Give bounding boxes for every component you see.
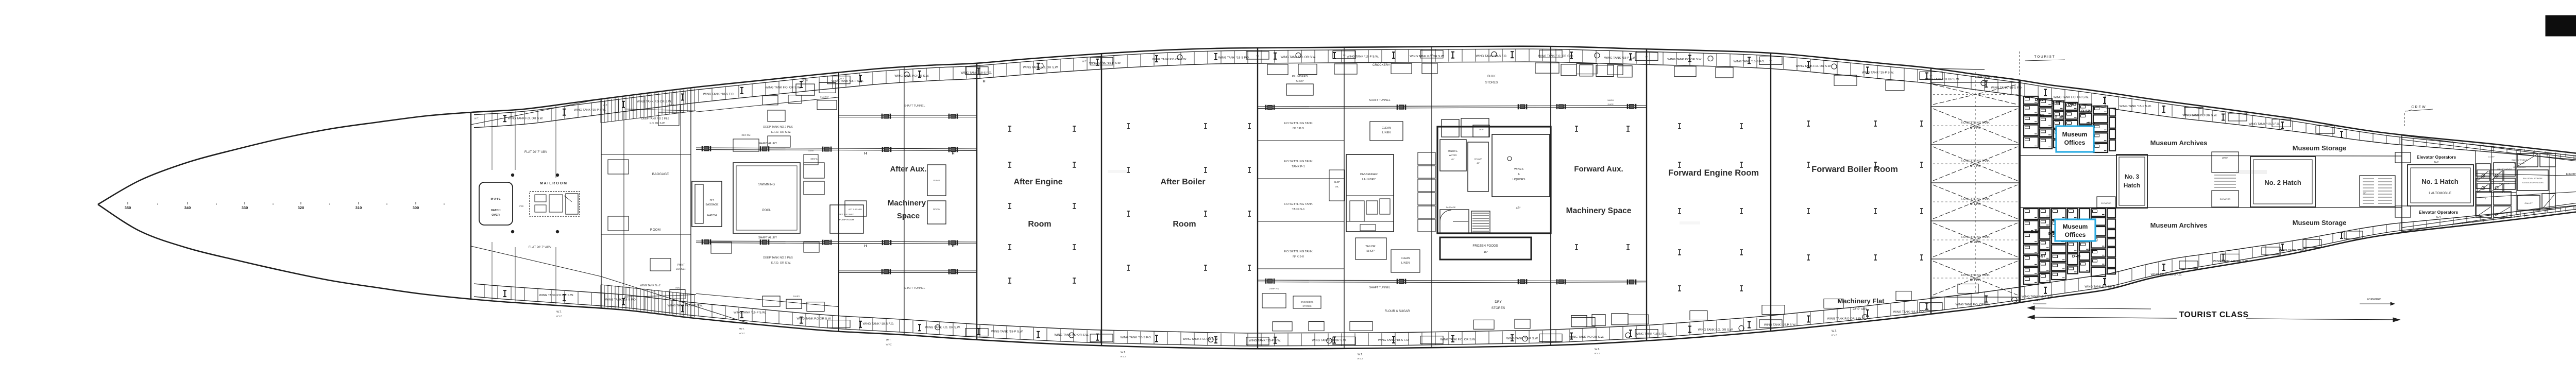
svg-text:WING TANK °15-P S.W.: WING TANK °15-P S.W.: [2279, 249, 2312, 252]
svg-text:AFT: AFT: [2037, 299, 2042, 302]
svg-text:45°: 45°: [1516, 207, 1521, 210]
svg-text:TE: TE: [1929, 75, 1933, 77]
svg-text:Space: Space: [897, 212, 920, 220]
svg-text:W.T.: W.T.: [1082, 60, 1087, 62]
svg-text:HATCH: HATCH: [707, 214, 717, 217]
svg-text:MINERAL: MINERAL: [1448, 150, 1458, 152]
svg-text:HATCH: HATCH: [491, 209, 501, 212]
svg-text:F.O SETTLING TANK: F.O SETTLING TANK: [1284, 250, 1313, 253]
svg-text:BAGGAGE: BAGGAGE: [705, 203, 719, 206]
svg-text:SHOP: SHOP: [1296, 80, 1304, 83]
svg-text:W.V.Z: W.V.Z: [1831, 334, 1837, 337]
svg-text:WING TANK F.O. OR S.W.: WING TANK F.O. OR S.W.: [1440, 338, 1476, 341]
svg-text:WING TANK P.O OR S.W.: WING TANK P.O OR S.W.: [1569, 336, 1604, 339]
svg-text:SEW: SEW: [808, 149, 814, 152]
svg-text:Offices: Offices: [2064, 139, 2086, 146]
svg-text:Museum Storage: Museum Storage: [2293, 219, 2347, 227]
svg-text:1 AUTOMOBILE: 1 AUTOMOBILE: [2429, 192, 2451, 195]
svg-text:SHAFT TUNNEL: SHAFT TUNNEL: [1369, 286, 1390, 289]
svg-text:TE: TE: [1769, 60, 1772, 62]
svg-text:№2: №2: [2434, 161, 2439, 164]
svg-text:LAUNDRY: LAUNDRY: [1362, 178, 1376, 181]
svg-text:WING TANK F.O. OR S.W.: WING TANK F.O. OR S.W.: [766, 87, 801, 90]
svg-text:W.V.Z: W.V.Z: [556, 315, 562, 317]
svg-text:Nº 3 P.O: Nº 3 P.O: [1293, 127, 1304, 130]
svg-text:WING TANK F.O. OR S.W.: WING TANK F.O. OR S.W.: [508, 117, 544, 120]
svg-text:TE: TE: [1430, 54, 1433, 56]
svg-text:Machinery Space: Machinery Space: [1566, 206, 1632, 215]
svg-text:WING TANK °15-P S.W.: WING TANK °15-P S.W.: [1764, 324, 1797, 327]
svg-text:22'.0" ABV: 22'.0" ABV: [1853, 308, 1867, 311]
svg-text:W.V.Z: W.V.Z: [1594, 352, 1600, 355]
svg-text:After Engine: After Engine: [1013, 178, 1062, 186]
svg-text:D·58: D·58: [2036, 113, 2044, 117]
svg-text:W.T.: W.T.: [1595, 348, 1600, 351]
svg-text:D·50: D·50: [2087, 121, 2095, 126]
svg-text:Elevator Operators: Elevator Operators: [2419, 210, 2459, 215]
svg-text:350: 350: [125, 205, 131, 210]
svg-text:ELEVATOR: ELEVATOR: [2101, 202, 2111, 204]
svg-text:W.T.: W.T.: [1832, 330, 1837, 333]
svg-text:WING TANK °18-S F.O.: WING TANK °18-S F.O.: [1121, 336, 1152, 339]
svg-text:WING TANK P.O OR S.W.: WING TANK P.O OR S.W.: [796, 318, 832, 321]
svg-text:GALLEY W'NDLS: GALLEY W'NDLS: [2512, 159, 2528, 161]
svg-text:Hatch: Hatch: [2124, 183, 2140, 189]
svg-text:WING TANK °15-P S.W.: WING TANK °15-P S.W.: [1249, 339, 1281, 342]
svg-text:18 B.R: 18 B.R: [667, 103, 675, 106]
svg-text:LINEN: LINEN: [1401, 262, 1410, 265]
svg-text:TE: TE: [1256, 55, 1259, 57]
svg-text:D·62: D·62: [2068, 102, 2076, 107]
svg-text:SEW &: SEW &: [810, 158, 818, 160]
svg-text:WING TANK °15-P S.W.: WING TANK °15-P S.W.: [991, 331, 1024, 334]
svg-text:310: 310: [355, 205, 362, 210]
svg-text:45°: 45°: [1477, 162, 1480, 164]
svg-text:WING TANK F.O. OR S.W.: WING TANK F.O. OR S.W.: [925, 326, 961, 329]
svg-text:Forward Boiler Room: Forward Boiler Room: [1811, 165, 1898, 174]
svg-text:WING TANK °15-P S.W.: WING TANK °15-P S.W.: [2120, 105, 2152, 108]
svg-text:No. 2 Hatch: No. 2 Hatch: [2264, 179, 2301, 186]
svg-text:H: H: [952, 152, 954, 156]
svg-text:2'90: 2'90: [519, 205, 524, 208]
svg-text:PAINT: PAINT: [677, 264, 685, 267]
svg-text:UP: UP: [2363, 192, 2366, 194]
svg-text:Offices: Offices: [2065, 231, 2086, 238]
svg-text:W.T.: W.T.: [474, 117, 479, 120]
svg-text:D·64: D·64: [2052, 100, 2060, 105]
svg-text:D·56: D·56: [2035, 97, 2043, 102]
svg-text:REC RM: REC RM: [742, 134, 751, 136]
svg-text:D·47: D·47: [2088, 248, 2096, 252]
svg-text:D·59: D·59: [2031, 229, 2039, 234]
svg-text:W.V.Z: W.V.Z: [1357, 357, 1363, 360]
svg-text:WING TANK P.O OR S.W.: WING TANK P.O OR S.W.: [1312, 339, 1347, 342]
svg-text:WING TANK °18-S F.O.: WING TANK °18-S F.O.: [1734, 60, 1765, 63]
svg-text:CLEAN: CLEAN: [1382, 127, 1391, 130]
svg-text:STORES: STORES: [1485, 81, 1498, 84]
svg-text:SHAFT TUNNEL: SHAFT TUNNEL: [904, 287, 925, 290]
svg-text:W.T.: W.T.: [840, 77, 845, 80]
svg-text:TE: TE: [1645, 56, 1648, 58]
svg-text:TAILOR: TAILOR: [1365, 245, 1375, 248]
svg-text:WING TANK °18-S F.O.: WING TANK °18-S F.O.: [1893, 311, 1925, 314]
svg-text:M·A·I·L: M·A·I·L: [491, 198, 501, 201]
svg-text:Machinery: Machinery: [888, 199, 926, 208]
svg-text:ELEVATOR: ELEVATOR: [2220, 198, 2231, 200]
svg-text:Nº X 5-0: Nº X 5-0: [1293, 255, 1304, 258]
svg-text:WATER: WATER: [1449, 154, 1456, 157]
svg-text:Museum Archives: Museum Archives: [2150, 221, 2208, 229]
svg-text:-15°: -15°: [1483, 251, 1488, 254]
svg-text:WING TANK P.O OR S.W.: WING TANK P.O OR S.W.: [2182, 114, 2217, 117]
svg-text:WING TANK °18-S F.O.: WING TANK °18-S F.O.: [1218, 57, 1250, 60]
svg-text:TANK 5-1: TANK 5-1: [1292, 208, 1304, 211]
svg-text:E.F.O. OR S.W.: E.F.O. OR S.W.: [771, 262, 791, 265]
svg-text:SLOP: SLOP: [1334, 181, 1340, 183]
svg-text:WING TANK °15-P S.W.: WING TANK °15-P S.W.: [832, 80, 864, 83]
svg-text:POOL: POOL: [762, 209, 771, 212]
svg-text:Museum: Museum: [2063, 223, 2088, 230]
svg-text:GALLEY: GALLEY: [2524, 202, 2533, 204]
svg-text:DEEP TANK NO 1 P&S: DEEP TANK NO 1 P&S: [641, 117, 670, 120]
svg-text:WINES: WINES: [1514, 168, 1523, 171]
svg-text:WING TANKS 3 P: WING TANKS 3 P: [1975, 76, 1997, 79]
svg-text:Museum Storage: Museum Storage: [2293, 144, 2347, 152]
svg-text:WASH: WASH: [1607, 99, 1614, 101]
svg-text:WING TANK P.O OR S.W.: WING TANK P.O OR S.W.: [1667, 58, 1702, 61]
svg-text:WING TANK °15-P S.W.: WING TANK °15-P S.W.: [2022, 295, 2054, 298]
svg-text:STORES: STORES: [1492, 306, 1505, 310]
svg-text:Museum: Museum: [2062, 131, 2088, 138]
svg-text:H: H: [952, 245, 954, 248]
svg-text:FLAT 20'.7" ABV: FLAT 20'.7" ABV: [524, 151, 547, 154]
svg-text:FLOUR & SUGAR: FLOUR & SUGAR: [1384, 310, 1410, 313]
svg-text:W.T.: W.T.: [603, 103, 608, 106]
svg-text:WING TANK °18-S F.O.: WING TANK °18-S F.O.: [2249, 123, 2280, 126]
svg-text:SHAFT TUNNEL: SHAFT TUNNEL: [904, 105, 925, 108]
svg-text:LINEN: LINEN: [2222, 157, 2228, 159]
svg-text:WING TANK °18-S F.O.: WING TANK °18-S F.O.: [703, 93, 735, 96]
svg-text:WING TANK °15-P S.W.: WING TANK °15-P S.W.: [734, 312, 766, 315]
svg-text:After Aux.: After Aux.: [890, 165, 926, 174]
svg-text:WING TANK P.O OR S.W.: WING TANK P.O OR S.W.: [1054, 334, 1089, 337]
svg-text:LAMP RM: LAMP RM: [1269, 287, 1280, 290]
svg-text:OPERATORS: OPERATORS: [2513, 166, 2526, 168]
svg-text:ELEVATOR OPERATORS: ELEVATOR OPERATORS: [2522, 182, 2544, 184]
svg-text:WING TANK F.O. OR S.W.: WING TANK F.O. OR S.W.: [1281, 56, 1316, 59]
svg-text:Room: Room: [1173, 220, 1196, 229]
svg-text:F.O SETTLING TANK: F.O SETTLING TANK: [1284, 203, 1313, 206]
svg-text:WING TANK °18-S F.O.: WING TANK °18-S F.O.: [2151, 273, 2182, 277]
svg-text:STORES: STORES: [1302, 305, 1311, 307]
svg-text:330: 330: [242, 205, 248, 210]
svg-text:TE: TE: [1549, 53, 1552, 56]
svg-text:W.V.Z: W.V.Z: [1120, 355, 1126, 358]
svg-text:No. 3: No. 3: [2125, 174, 2139, 180]
svg-text:WING TANK P.O OR S.W.: WING TANK P.O OR S.W.: [2084, 285, 2120, 288]
svg-text:Forward Engine Room: Forward Engine Room: [1668, 168, 1759, 178]
svg-text:WING TANK °18-S F.O.: WING TANK °18-S F.O.: [863, 323, 894, 326]
svg-text:H: H: [864, 245, 867, 248]
svg-text:DEEP TANK NO 2 P&S: DEEP TANK NO 2 P&S: [763, 126, 793, 129]
svg-text:WING TANK °15-P S.W.: WING TANK °15-P S.W.: [1347, 56, 1379, 59]
svg-text:Forward Aux.: Forward Aux.: [1574, 165, 1623, 174]
svg-text:H: H: [864, 152, 867, 156]
svg-text:TE: TE: [975, 70, 978, 73]
svg-text:AFT 1-42 MFD: AFT 1-42 MFD: [849, 208, 862, 211]
svg-text:W.V.Z: W.V.Z: [886, 343, 891, 346]
svg-text:F.O. OR S.W.: F.O. OR S.W.: [650, 122, 665, 125]
svg-text:BEER: BEER: [802, 79, 808, 81]
svg-text:T O U R I S T: T O U R I S T: [2034, 55, 2054, 59]
svg-text:BALLROOM W'DROBE: BALLROOM W'DROBE: [2523, 178, 2543, 180]
svg-text:TOURIST CLASS: TOURIST CLASS: [2179, 310, 2248, 319]
svg-text:SHOP: SHOP: [1607, 103, 1614, 106]
svg-text:Machinery Flat: Machinery Flat: [1837, 297, 1885, 305]
svg-text:SHAFT ALLEY: SHAFT ALLEY: [758, 236, 777, 239]
svg-text:D·57: D·57: [2037, 254, 2045, 258]
svg-text:PUMP: PUMP: [933, 179, 940, 182]
svg-text:WING TANK °18-S F.O.: WING TANK °18-S F.O.: [1378, 339, 1410, 342]
svg-text:BAGGAGE: BAGGAGE: [652, 172, 669, 176]
svg-text:WING TANK P.O OR S.W.: WING TANK P.O OR S.W.: [894, 75, 929, 78]
svg-text:♂: ♂: [2484, 198, 2486, 201]
svg-text:PASSENGER: PASSENGER: [1360, 173, 1378, 176]
svg-text:F.O SETTLING TANK: F.O SETTLING TANK: [1284, 122, 1313, 125]
svg-text:WING TANK P.O OR S.W.: WING TANK P.O OR S.W.: [539, 294, 574, 297]
svg-text:WING TANK F.O. OR S.W.: WING TANK F.O. OR S.W.: [1796, 65, 1832, 68]
svg-text:OVER: OVER: [492, 214, 500, 217]
svg-text:ROOM: ROOM: [933, 208, 940, 211]
svg-text:340: 340: [184, 205, 191, 210]
svg-text:WING TANK °15-P S.W.: WING TANK °15-P S.W.: [1604, 57, 1637, 60]
svg-text:D·54: D·54: [2055, 114, 2063, 118]
svg-text:FROZEN FOODS: FROZEN FOODS: [1472, 244, 1498, 248]
svg-text:WING TANK P.O OR S.W.: WING TANK P.O OR S.W.: [637, 100, 672, 103]
svg-text:BULK: BULK: [1487, 75, 1496, 78]
svg-text:Museum Archives: Museum Archives: [2150, 139, 2208, 147]
svg-text:WING TANK °15-P S.W.: WING TANK °15-P S.W.: [1862, 71, 1894, 74]
svg-text:300: 300: [413, 205, 419, 210]
svg-text:TE: TE: [1100, 60, 1103, 63]
svg-text:OIL: OIL: [1335, 185, 1339, 188]
svg-text:M A I L R O O M: M A I L R O O M: [540, 182, 567, 185]
svg-text:TE: TE: [837, 79, 840, 82]
svg-text:WING TANK F.O. OR S.W.: WING TANK F.O. OR S.W.: [1538, 55, 1574, 58]
svg-text:PASSAGE: PASSAGE: [1446, 206, 1456, 209]
svg-text:FLAT 20'.7" ABV: FLAT 20'.7" ABV: [529, 246, 551, 249]
svg-text:W.T.: W.T.: [1121, 351, 1126, 354]
svg-text:LOCKER: LOCKER: [676, 268, 687, 271]
svg-text:SHOP: SHOP: [1366, 250, 1375, 253]
svg-text:TE: TE: [1343, 54, 1346, 57]
svg-text:WING TANK F.O. OR S.W.: WING TANK F.O. OR S.W.: [1023, 66, 1059, 70]
svg-text:DEEP TANK NO 2 P&S: DEEP TANK NO 2 P&S: [763, 256, 793, 260]
svg-text:Nº4: Nº4: [709, 198, 714, 202]
svg-text:SWIMMING: SWIMMING: [758, 183, 775, 186]
svg-text:LINEN: LINEN: [1382, 131, 1391, 134]
svg-text:PLUMBERS: PLUMBERS: [1292, 75, 1308, 78]
svg-text:W.T.: W.T.: [556, 310, 562, 314]
svg-text:W.V.Z: W.V.Z: [739, 332, 744, 335]
svg-text:W.T.: W.T.: [886, 339, 891, 342]
svg-text:&: &: [1518, 173, 1520, 176]
svg-text:DAIRY: DAIRY: [793, 295, 800, 298]
svg-text:WING TANK °15-P S.W.: WING TANK °15-P S.W.: [1089, 62, 1122, 65]
svg-text:FORWARD: FORWARD: [2367, 298, 2381, 301]
svg-text:WING TANK P.O OR S.W.: WING TANK P.O OR S.W.: [1410, 55, 1445, 58]
svg-text:ROOM: ROOM: [650, 228, 660, 232]
svg-text:ELEVATOR: ELEVATOR: [2514, 163, 2524, 165]
svg-text:ENGINEERS: ENGINEERS: [1301, 301, 1314, 303]
svg-text:No. 1 Hatch: No. 1 Hatch: [2421, 178, 2459, 185]
svg-text:WING TANK F.O. OR S.W.: WING TANK F.O. OR S.W.: [1698, 329, 1734, 332]
svg-text:W.T.: W.T.: [1358, 353, 1363, 356]
svg-text:WING TANK F.O. OR S.W.: WING TANK F.O. OR S.W.: [1956, 303, 1991, 306]
svg-text:Elevator Operators: Elevator Operators: [2417, 154, 2456, 160]
svg-text:CHAMP.: CHAMP.: [1474, 158, 1482, 160]
svg-text:PUMP ROOM: PUMP ROOM: [839, 218, 854, 221]
svg-text:P.O.: P.O.: [651, 289, 655, 292]
svg-text:H: H: [982, 80, 985, 83]
svg-text:WING TANK P.O OR S.W.: WING TANK P.O OR S.W.: [1827, 318, 1862, 321]
svg-text:DEW: DEW: [1479, 129, 1484, 131]
svg-text:After Boiler: After Boiler: [1160, 178, 1205, 186]
svg-text:TANK P-1: TANK P-1: [1292, 165, 1305, 168]
svg-text:C R E W: C R E W: [2411, 106, 2426, 109]
svg-text:320: 320: [298, 205, 304, 210]
svg-text:DRY: DRY: [1495, 300, 1502, 304]
svg-text:E.F.O. OR S.W.: E.F.O. OR S.W.: [771, 131, 791, 134]
svg-text:LIQUORS: LIQUORS: [1513, 178, 1526, 181]
svg-text:D·49: D·49: [2072, 254, 2080, 258]
svg-text:Room: Room: [1028, 220, 1051, 229]
svg-text:CO2 RM: CO2 RM: [820, 95, 829, 98]
svg-text:№3: №3: [2436, 216, 2441, 219]
svg-text:D·52: D·52: [2081, 109, 2090, 113]
svg-text:WING TANK F.O. OR S.W.: WING TANK F.O. OR S.W.: [2054, 96, 2089, 99]
svg-text:F.O SETTLING TANK: F.O SETTLING TANK: [1284, 160, 1313, 163]
svg-text:WING TANK No.2: WING TANK No.2: [640, 284, 660, 287]
svg-text:WING TANK °18-S F.O.: WING TANK °18-S F.O.: [605, 299, 637, 302]
svg-text:45°: 45°: [1451, 158, 1455, 161]
svg-text:CROCKERY: CROCKERY: [1372, 64, 1390, 67]
svg-text:AFT 1-42 MFD: AFT 1-42 MFD: [839, 213, 855, 216]
svg-text:CLEAN: CLEAN: [1401, 257, 1410, 260]
svg-text:WING TANK °18-S F.O.: WING TANK °18-S F.O.: [1636, 333, 1667, 336]
svg-text:SHAFT TUNNEL: SHAFT TUNNEL: [1369, 99, 1390, 102]
svg-text:W.T.: W.T.: [739, 328, 744, 331]
